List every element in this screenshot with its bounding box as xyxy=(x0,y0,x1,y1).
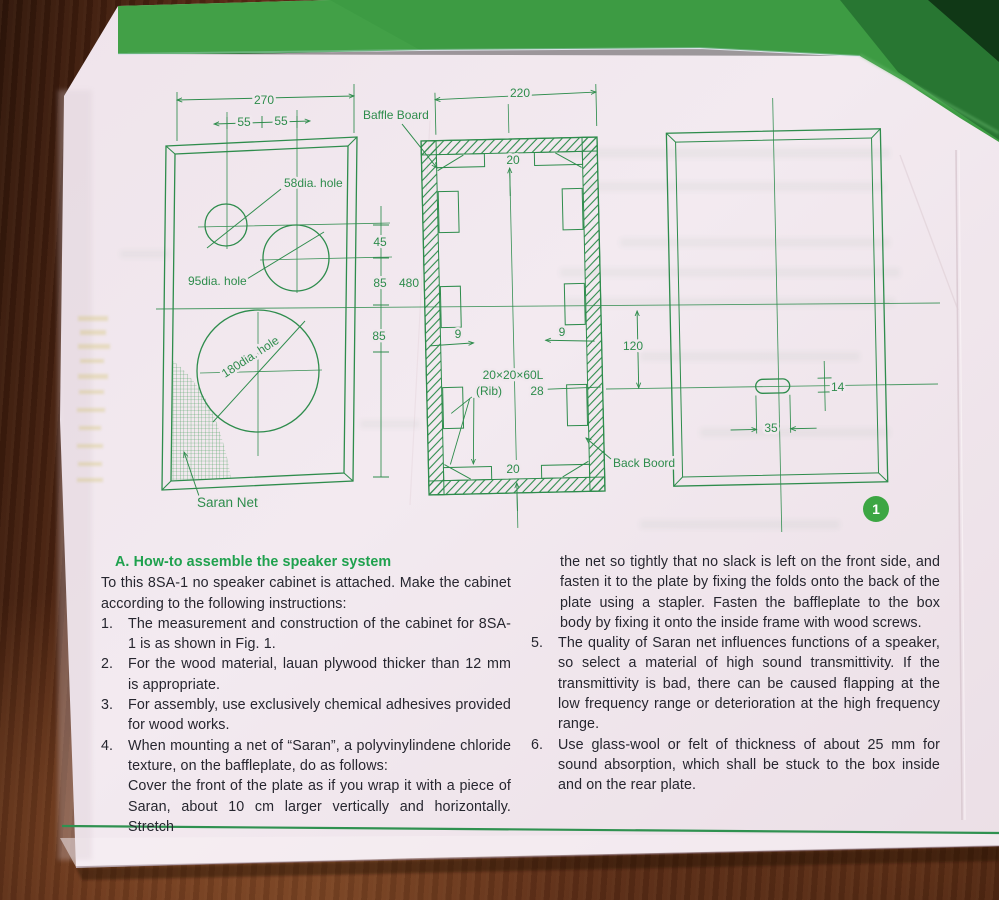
hole-95-label: 95dia. hole xyxy=(188,274,247,288)
saran-net-label: Saran Net xyxy=(197,495,258,510)
list-item: 4. When mounting a net of “Saran”, a pol… xyxy=(101,736,511,837)
dim-85a-label: 85 xyxy=(373,276,387,290)
section-heading: A. How-to assemble the speaker system xyxy=(101,552,511,572)
dim-9-right-label: 9 xyxy=(559,325,566,339)
dim-35-label: 35 xyxy=(764,421,778,435)
dim-9-left-label: 9 xyxy=(455,327,462,341)
figure-number: 1 xyxy=(872,501,880,517)
item-text: When mounting a net of “Saran”, a polyvi… xyxy=(128,736,511,837)
list-item: 5. The quality of Saran net influences f… xyxy=(531,633,940,734)
item-text-part1: When mounting a net of “Saran”, a polyvi… xyxy=(128,736,511,777)
instructions-right-column: the net so tightly that no slack is left… xyxy=(531,552,940,796)
dim-20-top-label: 20 xyxy=(506,153,520,167)
item-text: Use glass-wool or felt of thickness of a… xyxy=(558,735,940,796)
figure-number-badge: 1 xyxy=(863,496,889,522)
item-number: 4. xyxy=(101,736,128,837)
dim-14-label: 14 xyxy=(831,380,845,394)
list-item: 1. The measurement and construction of t… xyxy=(101,614,511,655)
dim-480-label: 480 xyxy=(399,276,419,290)
rib-28-label: 28 xyxy=(530,384,544,398)
list-item: 6. Use glass-wool or felt of thickness o… xyxy=(531,735,940,796)
item-text-part2: Cover the front of the plate as if you w… xyxy=(128,776,511,837)
dim-55b-label: 55 xyxy=(274,114,288,128)
item-text: For assembly, use exclusively chemical a… xyxy=(128,695,511,736)
photo-of-instruction-leaflet: 270 55 55 Baffle Board 58dia. hole 95dia… xyxy=(0,0,999,900)
item-number: 1. xyxy=(101,614,128,655)
rib-size-label: 20×20×60L xyxy=(483,368,544,382)
item-number: 2. xyxy=(101,654,128,695)
item-text: The measurement and construction of the … xyxy=(128,614,511,655)
rib-word-label: (Rib) xyxy=(476,384,502,398)
list-item: 2. For the wood material, lauan plywood … xyxy=(101,654,511,695)
intro-paragraph: To this 8SA-1 no speaker cabinet is atta… xyxy=(101,573,511,614)
dim-120-label: 120 xyxy=(623,339,643,353)
dim-85b-label: 85 xyxy=(372,329,386,343)
item-number: 6. xyxy=(531,735,558,796)
hole-58-label: 58dia. hole xyxy=(284,176,343,190)
list-item: 3. For assembly, use exclusively chemica… xyxy=(101,695,511,736)
back-board-label: Back Boord xyxy=(613,456,675,470)
continuation-paragraph: the net so tightly that no slack is left… xyxy=(560,552,940,633)
dim-55a-label: 55 xyxy=(237,115,251,129)
dim-220-label: 220 xyxy=(510,86,530,100)
item-text: The quality of Saran net influences func… xyxy=(558,633,940,734)
item-number: 5. xyxy=(531,633,558,734)
item-number: 3. xyxy=(101,695,128,736)
instructions-left-column: A. How-to assemble the speaker system To… xyxy=(101,552,511,837)
dim-45-label: 45 xyxy=(373,235,387,249)
item-text: For the wood material, lauan plywood thi… xyxy=(128,654,511,695)
dim-20-bottom-label: 20 xyxy=(506,462,520,476)
baffle-board-label: Baffle Board xyxy=(363,108,429,122)
dim-270-label: 270 xyxy=(254,93,274,107)
